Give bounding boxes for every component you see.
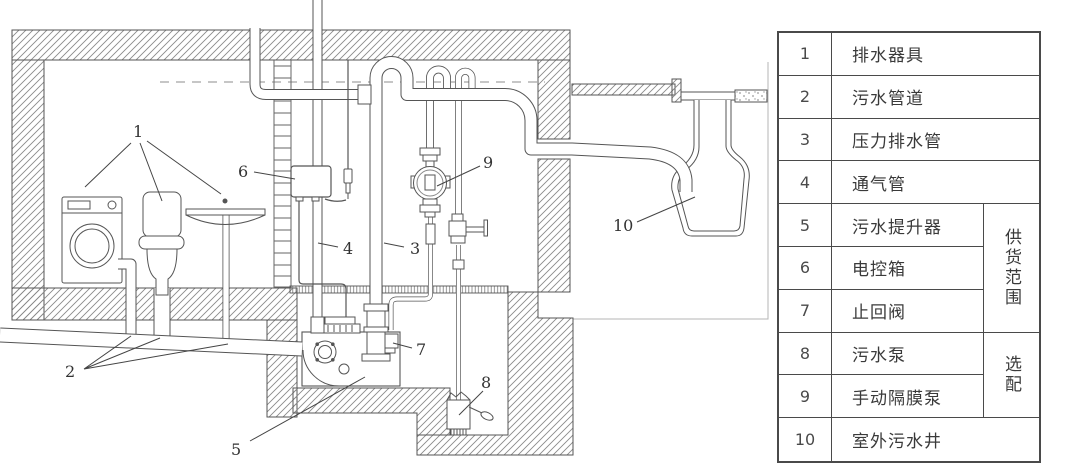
toilet	[139, 192, 184, 295]
legend-optional: 选配	[984, 333, 1039, 419]
diaphragm-pump-suction-line	[391, 215, 431, 330]
float-switch	[480, 410, 495, 422]
ceiling-slab	[12, 30, 570, 60]
well-concrete-block	[735, 90, 767, 102]
well-curb	[672, 79, 681, 102]
outdoor-ground-slab	[572, 84, 675, 95]
submersible-sewage-pump	[447, 392, 494, 435]
faucet-dot	[223, 199, 227, 203]
legend-row-3-num: 3	[779, 119, 832, 162]
shutoff-valve	[449, 214, 488, 269]
left-wall	[12, 60, 44, 320]
check-valve-body	[385, 334, 398, 348]
legend-row-5-name: 污水提升器	[832, 204, 984, 247]
level-sensor-plug	[344, 169, 352, 199]
right-wall-lower	[538, 159, 570, 292]
label-7: 7	[416, 340, 426, 359]
legend-table: 1 排水器具 2 污水管道 3 压力排水管 4 通气管 5 污水提升器 供货范围…	[777, 31, 1041, 463]
manual-diaphragm-pump	[411, 148, 450, 244]
legend-row-6-num: 6	[779, 247, 832, 290]
label-9: 9	[483, 153, 493, 172]
legend-row-5-num: 5	[779, 204, 832, 247]
pipe-reducer	[358, 85, 371, 104]
label-10: 10	[613, 216, 633, 235]
valve-handle	[484, 220, 488, 236]
legend-row-6-name: 电控箱	[832, 247, 984, 290]
legend-row-4-num: 4	[779, 161, 832, 204]
legend-row-8-name: 污水泵	[832, 333, 984, 376]
legend-row-3-name: 压力排水管	[832, 119, 1039, 162]
label-4: 4	[343, 239, 353, 258]
label-2: 2	[65, 362, 75, 381]
installation-diagram: 1 2 3 4 5 6 7 8 9 10	[0, 0, 775, 471]
legend-row-2-name: 污水管道	[832, 76, 1039, 119]
legend-row-1-name: 排水器具	[832, 33, 1039, 76]
legend-row-2-num: 2	[779, 76, 832, 119]
equipment-floor-band	[290, 286, 508, 293]
legend-row-9-num: 9	[779, 375, 832, 418]
legend-row-10-name: 室外污水井	[832, 418, 1039, 461]
vent-connection-stub	[311, 317, 324, 333]
washing-machine	[62, 197, 122, 283]
label-3: 3	[410, 239, 420, 258]
building-structure	[12, 30, 767, 455]
legend-row-7-name: 止回阀	[832, 290, 984, 333]
label-6: 6	[238, 162, 248, 181]
page: 1 2 3 4 5 6 7 8 9 10 1 排水器具 2 污水管道 3 压力排…	[0, 0, 1075, 471]
legend-row-7-num: 7	[779, 290, 832, 333]
legend-row-10-num: 10	[779, 418, 832, 461]
label-8: 8	[481, 373, 491, 392]
recess-floor	[293, 388, 450, 435]
label-1: 1	[133, 122, 143, 141]
well-cover-plate	[681, 92, 735, 100]
electric-control-box	[291, 166, 331, 201]
legend-row-8-num: 8	[779, 333, 832, 376]
legend-row-4-name: 通气管	[832, 161, 1039, 204]
legend-row-9-name: 手动隔膜泵	[832, 375, 984, 418]
label-5: 5	[231, 440, 241, 459]
legend-row-1-num: 1	[779, 33, 832, 76]
right-wall-upper	[538, 60, 570, 139]
pipe-coupling	[453, 260, 464, 269]
hose-connector	[426, 224, 435, 244]
legend-supply-scope: 供货范围	[984, 204, 1039, 332]
